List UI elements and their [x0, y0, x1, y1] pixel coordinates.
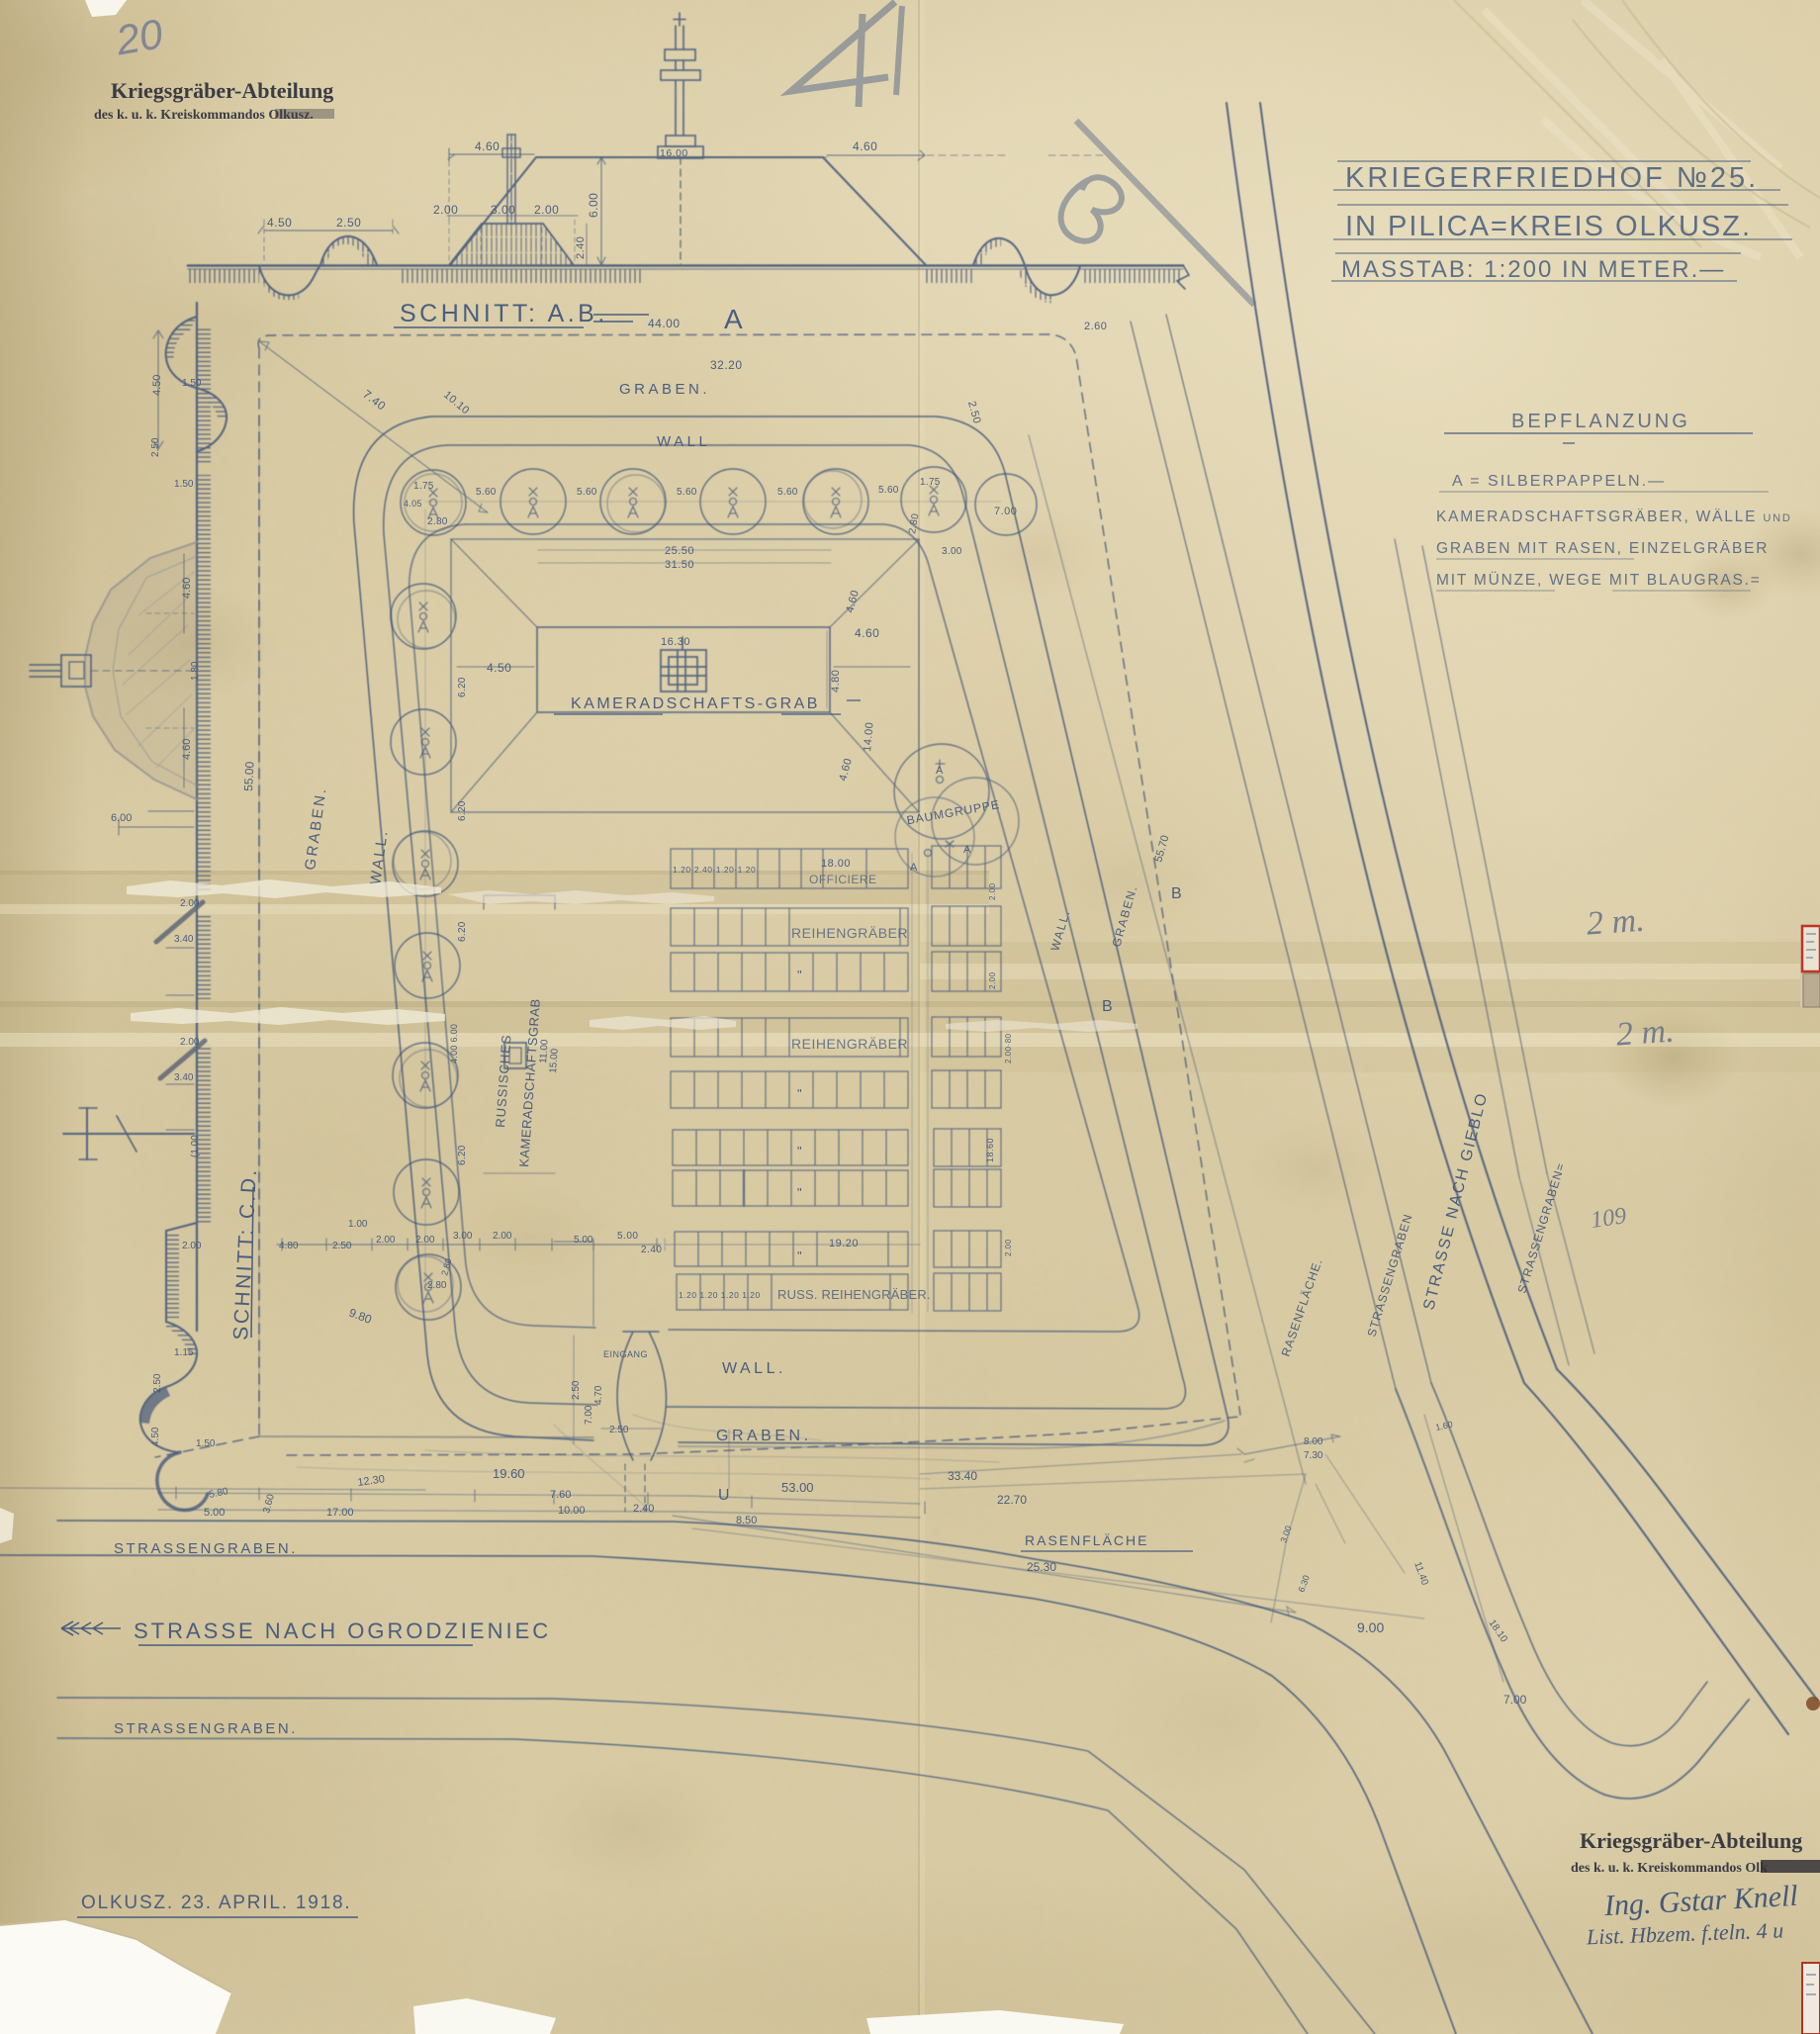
- svg-text:OFFICIERE: OFFICIERE: [809, 873, 877, 886]
- svg-text:19.20: 19.20: [829, 1238, 859, 1249]
- svg-text:25.30: 25.30: [1027, 1560, 1056, 1574]
- svg-text:18.60: 18.60: [985, 1138, 995, 1162]
- svg-text:55.00: 55.00: [241, 761, 257, 791]
- svg-text:4.60: 4.60: [475, 139, 500, 153]
- svg-text:3.00: 3.00: [942, 546, 962, 557]
- svg-text:2.40: 2.40: [641, 1245, 662, 1255]
- svg-text:8.00: 8.00: [1304, 1436, 1323, 1447]
- svg-text:REIHENGRÄBER: REIHENGRÄBER: [791, 1036, 908, 1052]
- svg-text:": ": [797, 1248, 802, 1263]
- svg-text:2.60: 2.60: [1084, 321, 1107, 332]
- svg-text:KRIEGERFRIEDHOF №25.: KRIEGERFRIEDHOF №25.: [1345, 162, 1759, 194]
- svg-text:2.00: 2.00: [415, 1235, 435, 1246]
- svg-text:2.00: 2.00: [180, 1037, 200, 1048]
- svg-text:16.00: 16.00: [660, 147, 688, 159]
- svg-text:4.05: 4.05: [404, 499, 422, 508]
- svg-text:53.00: 53.00: [781, 1480, 814, 1495]
- svg-text:WALL.: WALL.: [722, 1360, 786, 1377]
- svg-text:KAMERADSCHAFTS-GRAB: KAMERADSCHAFTS-GRAB: [571, 695, 820, 712]
- svg-text:3.40: 3.40: [174, 934, 194, 945]
- svg-text:1.75: 1.75: [413, 481, 434, 492]
- svg-text:STRASSENGRABEN.: STRASSENGRABEN.: [114, 1540, 298, 1557]
- svg-text:15.00: 15.00: [548, 1048, 561, 1073]
- svg-text:IN PILICA=KREIS OLKUSZ.: IN PILICA=KREIS OLKUSZ.: [1345, 211, 1752, 242]
- svg-text:2.50: 2.50: [336, 216, 361, 230]
- svg-text:17.00: 17.00: [326, 1507, 354, 1519]
- svg-text:6.20: 6.20: [457, 800, 468, 821]
- svg-text:5.00: 5.00: [617, 1231, 638, 1242]
- svg-text:1.20 1.20 1.20 1.20: 1.20 1.20 1.20 1.20: [679, 1290, 761, 1300]
- svg-text:GRABEN.: GRABEN.: [619, 381, 710, 398]
- svg-text:18.00: 18.00: [821, 858, 851, 870]
- svg-text:5.60: 5.60: [878, 485, 899, 496]
- svg-text:EINGANG: EINGANG: [603, 1349, 648, 1359]
- svg-text:2.00: 2.00: [988, 882, 997, 900]
- svg-text:1.80: 1.80: [190, 661, 201, 681]
- svg-text:GRABEN.: GRABEN.: [716, 1428, 812, 1444]
- svg-text:2.00: 2.00: [493, 1231, 512, 1242]
- svg-text:A: A: [910, 862, 918, 874]
- svg-text:4.00 6.00: 4.00 6.00: [449, 1024, 459, 1063]
- svg-text:16.30: 16.30: [661, 636, 690, 648]
- svg-text:3.00: 3.00: [491, 203, 515, 217]
- svg-text:(1.00: (1.00: [190, 1135, 201, 1157]
- svg-text:A = SILBERPAPPELN.—: A = SILBERPAPPELN.—: [1452, 473, 1666, 490]
- svg-text:109: 109: [1590, 1203, 1628, 1234]
- svg-text:2.00: 2.00: [534, 203, 559, 217]
- svg-text:9.00: 9.00: [1357, 1619, 1384, 1635]
- svg-text:5.60: 5.60: [777, 487, 798, 498]
- svg-text:2.00·80: 2.00·80: [1004, 1033, 1013, 1063]
- svg-text:7.30: 7.30: [1304, 1450, 1323, 1461]
- svg-text:2.00: 2.00: [433, 203, 458, 217]
- svg-text:4.60: 4.60: [181, 578, 193, 599]
- svg-text:4.70: 4.70: [593, 1385, 604, 1405]
- svg-text:2 m.: 2 m.: [1586, 902, 1646, 943]
- svg-text:6.20: 6.20: [457, 1145, 468, 1165]
- svg-text:A: A: [724, 304, 743, 334]
- svg-text:2.00: 2.00: [988, 971, 997, 989]
- svg-text:2 m.: 2 m.: [1615, 1013, 1676, 1054]
- svg-text:OLKUSZ. 23. APRIL. 1918.: OLKUSZ. 23. APRIL. 1918.: [81, 1893, 351, 1913]
- svg-text:1.20·2.40·1.20·1.20: 1.20·2.40·1.20·1.20: [673, 865, 756, 875]
- svg-text:7.00: 7.00: [1503, 1693, 1527, 1707]
- svg-text:6.00: 6.00: [111, 812, 132, 824]
- svg-text:7.00: 7.00: [994, 506, 1017, 517]
- svg-text:SCHNITT: A.B.: SCHNITT: A.B.: [400, 300, 608, 327]
- svg-text:5.00: 5.00: [574, 1235, 593, 1246]
- svg-text:MIT MÜNZE, WEGE MIT BLAUGRAS.=: MIT MÜNZE, WEGE MIT BLAUGRAS.=: [1436, 571, 1762, 589]
- svg-text:4.50: 4.50: [267, 216, 292, 230]
- svg-text:B: B: [1171, 885, 1182, 902]
- svg-text:20: 20: [112, 10, 167, 64]
- svg-text:4.50: 4.50: [150, 1427, 161, 1446]
- svg-text:33.40: 33.40: [948, 1469, 977, 1483]
- svg-text:2.40: 2.40: [633, 1503, 654, 1515]
- svg-text:2.00: 2.00: [180, 898, 200, 909]
- svg-text:A: A: [963, 844, 971, 856]
- svg-text:GRABEN MIT RASEN, EINZELGRÄBER: GRABEN MIT RASEN, EINZELGRÄBER: [1436, 540, 1769, 557]
- svg-text:19.60: 19.60: [493, 1466, 525, 1481]
- svg-text:Kriegsgräber-Abteilung: Kriegsgräber-Abteilung: [111, 78, 333, 103]
- svg-text:": ": [797, 1086, 802, 1101]
- svg-text:3.40: 3.40: [174, 1072, 194, 1083]
- svg-text:STRASSENGRABEN.: STRASSENGRABEN.: [114, 1720, 298, 1737]
- svg-text:5.60: 5.60: [577, 487, 597, 498]
- svg-text:4.80: 4.80: [279, 1241, 299, 1251]
- svg-text:10.00: 10.00: [558, 1505, 586, 1517]
- svg-text:3.00: 3.00: [453, 1231, 473, 1242]
- svg-text:2.00: 2.00: [376, 1235, 396, 1246]
- svg-text:2.50: 2.50: [150, 437, 161, 457]
- svg-text:2.00: 2.00: [1004, 1239, 1013, 1256]
- svg-text:2.00: 2.00: [182, 1241, 202, 1251]
- svg-text:4.60: 4.60: [181, 739, 193, 760]
- svg-text:32.20: 32.20: [710, 358, 743, 372]
- svg-text:4.50: 4.50: [151, 375, 163, 396]
- svg-text:": ": [797, 1144, 802, 1158]
- svg-text:2.50: 2.50: [571, 1380, 582, 1400]
- svg-text:7.60: 7.60: [550, 1489, 571, 1501]
- svg-text:WALL: WALL: [657, 433, 710, 450]
- svg-text:": ": [797, 968, 802, 982]
- svg-text:A: A: [936, 765, 944, 777]
- svg-text:5.60: 5.60: [476, 487, 497, 498]
- svg-text:KAMERADSCHAFTSGRÄBER, WÄLLE UN: KAMERADSCHAFTSGRÄBER, WÄLLE UND: [1436, 508, 1792, 525]
- svg-text:8.50: 8.50: [736, 1515, 757, 1526]
- svg-text:RUSS. REIHENGRÄBER.: RUSS. REIHENGRÄBER.: [777, 1287, 931, 1302]
- svg-text:4.50: 4.50: [487, 661, 511, 675]
- svg-text:1.50: 1.50: [196, 1438, 216, 1449]
- svg-text:4.60: 4.60: [853, 139, 877, 153]
- svg-text:": ": [797, 1185, 802, 1200]
- svg-text:des k. u. k. Kreiskommandos Ol: des k. u. k. Kreiskommandos Olk: [1571, 1861, 1768, 1876]
- svg-text:U: U: [718, 1487, 730, 1504]
- svg-text:2.50: 2.50: [609, 1425, 629, 1435]
- svg-text:2.50: 2.50: [152, 1373, 163, 1393]
- svg-text:REIHENGRÄBER: REIHENGRÄBER: [791, 925, 908, 941]
- svg-text:6.00: 6.00: [587, 193, 600, 218]
- svg-text:RASENFLÄCHE: RASENFLÄCHE: [1025, 1532, 1148, 1548]
- svg-text:Kriegsgräber-Abteilung: Kriegsgräber-Abteilung: [1580, 1828, 1802, 1853]
- svg-text:MASSTAB: 1:200 IN METER.—: MASSTAB: 1:200 IN METER.—: [1341, 256, 1725, 283]
- svg-text:6.20: 6.20: [457, 921, 468, 942]
- svg-text:6.20: 6.20: [457, 677, 468, 697]
- svg-text:7.00: 7.00: [584, 1405, 594, 1425]
- svg-text:STRASSE NACH OGRODZIENIEC: STRASSE NACH OGRODZIENIEC: [134, 1618, 551, 1643]
- svg-text:44.00: 44.00: [648, 317, 681, 330]
- svg-text:4.60: 4.60: [855, 626, 879, 640]
- svg-text:1.50: 1.50: [182, 378, 202, 389]
- svg-text:2.80: 2.80: [427, 1280, 447, 1291]
- svg-text:5.60: 5.60: [677, 487, 697, 498]
- svg-text:B: B: [1102, 998, 1113, 1015]
- svg-text:22.70: 22.70: [997, 1493, 1027, 1507]
- svg-text:4.80: 4.80: [830, 670, 842, 693]
- svg-text:25.50: 25.50: [665, 545, 694, 557]
- svg-text:BEPFLANZUNG: BEPFLANZUNG: [1511, 411, 1690, 432]
- svg-text:1.75: 1.75: [920, 477, 941, 488]
- svg-text:1.00: 1.00: [348, 1219, 368, 1230]
- svg-text:1.15: 1.15: [174, 1347, 194, 1358]
- svg-text:2.50: 2.50: [332, 1241, 352, 1251]
- svg-text:1.50: 1.50: [174, 479, 194, 490]
- svg-text:5.00: 5.00: [204, 1507, 225, 1519]
- svg-text:2.80: 2.80: [427, 516, 448, 527]
- svg-text:2.40: 2.40: [575, 236, 587, 259]
- svg-text:31.50: 31.50: [665, 559, 694, 571]
